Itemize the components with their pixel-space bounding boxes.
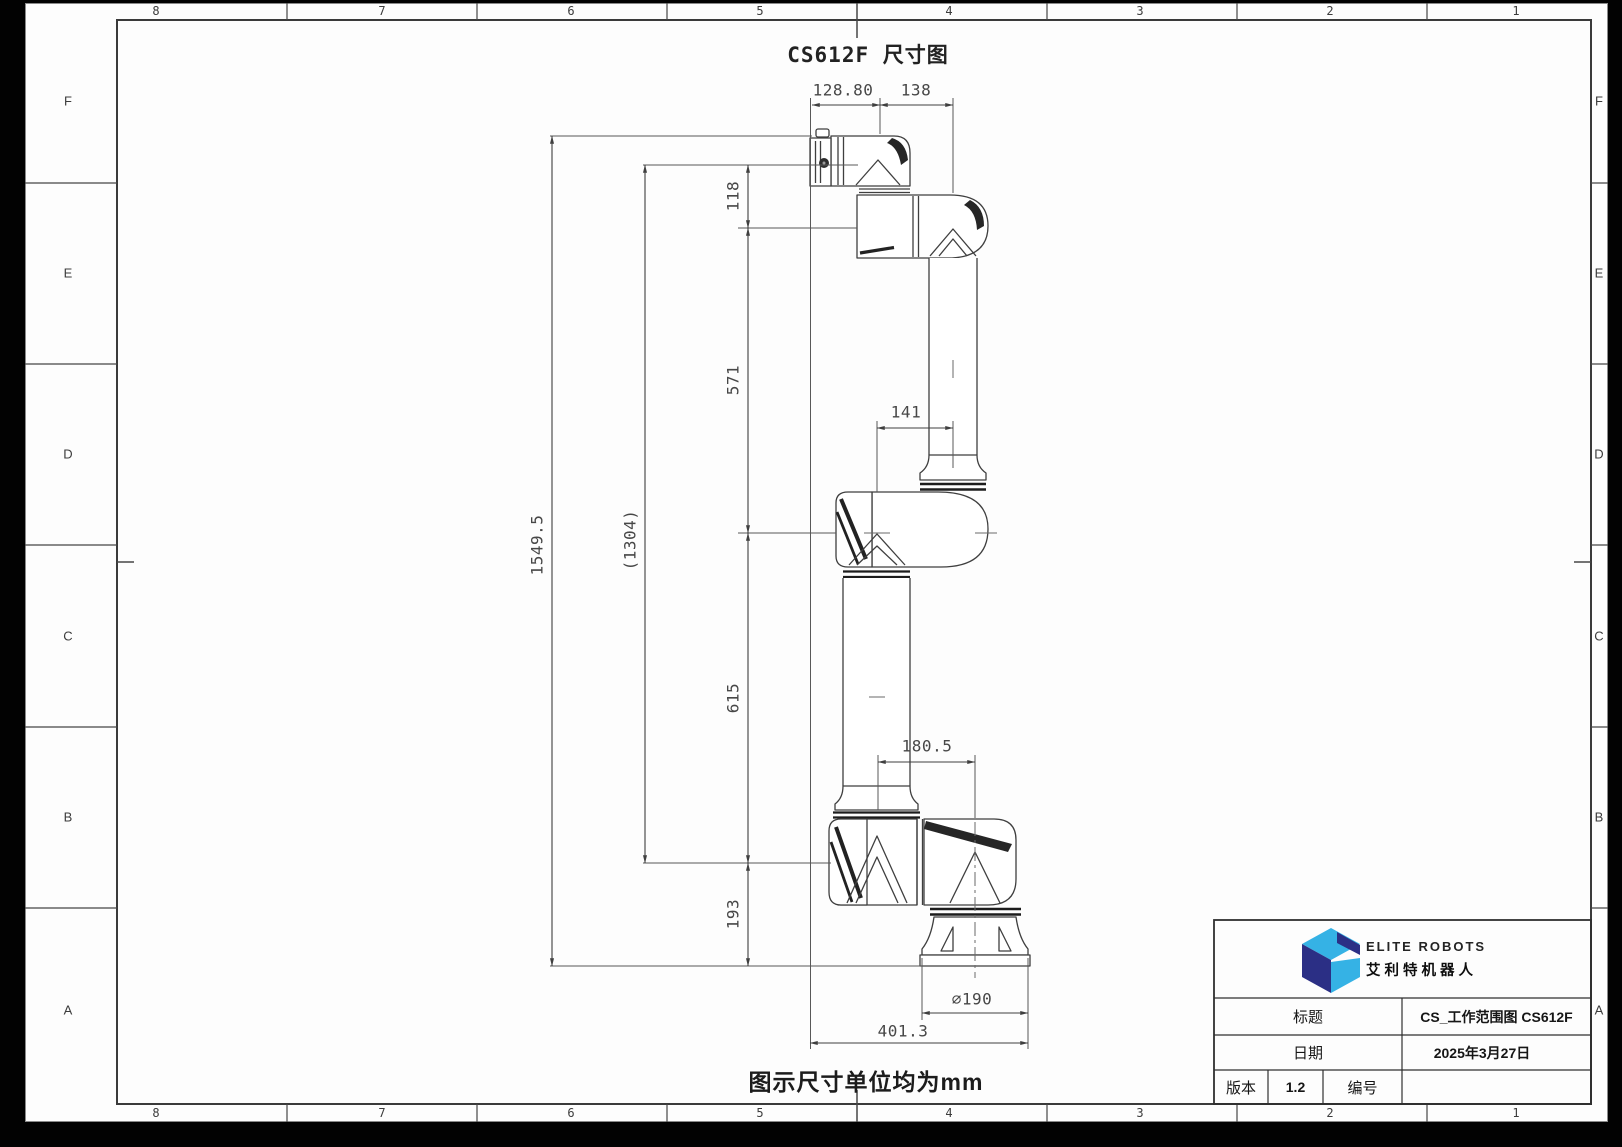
wrist-joint xyxy=(857,195,988,258)
tool-flange xyxy=(810,129,910,193)
zone-row-left-D: D xyxy=(63,447,72,462)
zone-col-top-3: 3 xyxy=(1136,4,1143,18)
units-note: 图示尺寸单位均为mm xyxy=(749,1063,984,1097)
brand-name-cn: 艾利特机器人 xyxy=(1366,959,1477,980)
dim-flange-to-wrist: 118 xyxy=(724,181,743,211)
number-value xyxy=(1402,1070,1591,1104)
version-value: 1.2 xyxy=(1268,1070,1323,1104)
upper-arm-tube xyxy=(843,578,910,786)
zone-row-right-E: E xyxy=(1595,266,1604,281)
elbow-joint xyxy=(836,455,997,577)
dim-base-diameter: ∅190 xyxy=(952,990,993,1009)
zone-row-left-F: F xyxy=(64,94,72,109)
page-title: CS612F 尺寸图 xyxy=(787,39,949,69)
zone-col-bottom-6: 6 xyxy=(567,1106,574,1120)
zone-row-right-D: D xyxy=(1594,447,1603,462)
elite-robots-logo xyxy=(1302,928,1360,993)
dim-footprint-width: 401.3 xyxy=(878,1022,929,1041)
zone-row-right-F: F xyxy=(1595,94,1603,109)
zone-col-top-5: 5 xyxy=(756,4,763,18)
zone-col-bottom-3: 3 xyxy=(1136,1106,1143,1120)
dim-upper-arm-length: 615 xyxy=(724,683,743,713)
zone-row-left-A: A xyxy=(64,1003,73,1018)
title-label: 标题 xyxy=(1214,998,1402,1035)
number-label: 编号 xyxy=(1323,1070,1402,1104)
zone-col-bottom-5: 5 xyxy=(756,1106,763,1120)
zone-col-bottom-2: 2 xyxy=(1326,1106,1333,1120)
version-label: 版本 xyxy=(1214,1070,1268,1104)
zone-col-top-8: 8 xyxy=(152,4,159,18)
dim-elbow-offset: 141 xyxy=(891,403,921,422)
dim-wrist-reach: 128.80 xyxy=(813,81,874,100)
dim-ref-height: (1304) xyxy=(621,510,640,571)
date-value: 2025年3月27日 xyxy=(1402,1035,1562,1070)
zone-col-top-4: 4 xyxy=(945,4,952,18)
dim-overall-height: 1549.5 xyxy=(528,515,547,576)
zone-row-left-C: C xyxy=(63,629,72,644)
zone-col-bottom-4: 4 xyxy=(945,1106,952,1120)
zone-col-bottom-1: 1 xyxy=(1512,1106,1519,1120)
dim-base-height: 193 xyxy=(724,899,743,929)
zone-row-right-A: A xyxy=(1595,1003,1604,1018)
zone-row-left-B: B xyxy=(64,810,73,825)
zone-col-bottom-8: 8 xyxy=(152,1106,159,1120)
zone-row-left-E: E xyxy=(64,266,73,281)
dim-wrist-offset: 138 xyxy=(901,81,931,100)
title-value: CS_工作范围图 CS612F xyxy=(1402,998,1591,1035)
brand-name-en: ELITE ROBOTS xyxy=(1366,939,1486,954)
dim-forearm-length: 571 xyxy=(724,365,743,395)
zone-col-bottom-7: 7 xyxy=(378,1106,385,1120)
zone-col-top-6: 6 xyxy=(567,4,574,18)
shoulder-joint xyxy=(829,786,1016,905)
zone-col-top-7: 7 xyxy=(378,4,385,18)
zone-col-top-1: 1 xyxy=(1512,4,1519,18)
zone-row-right-B: B xyxy=(1595,810,1604,825)
date-label: 日期 xyxy=(1214,1035,1402,1070)
robot-arm-drawing xyxy=(810,129,1030,978)
zone-row-right-C: C xyxy=(1594,629,1603,644)
zone-col-top-2: 2 xyxy=(1326,4,1333,18)
dim-shoulder-offset: 180.5 xyxy=(902,737,953,756)
drawing-sheet: 8 7 6 5 4 3 2 1 8 7 6 5 4 3 2 1 F E D C … xyxy=(0,0,1622,1147)
